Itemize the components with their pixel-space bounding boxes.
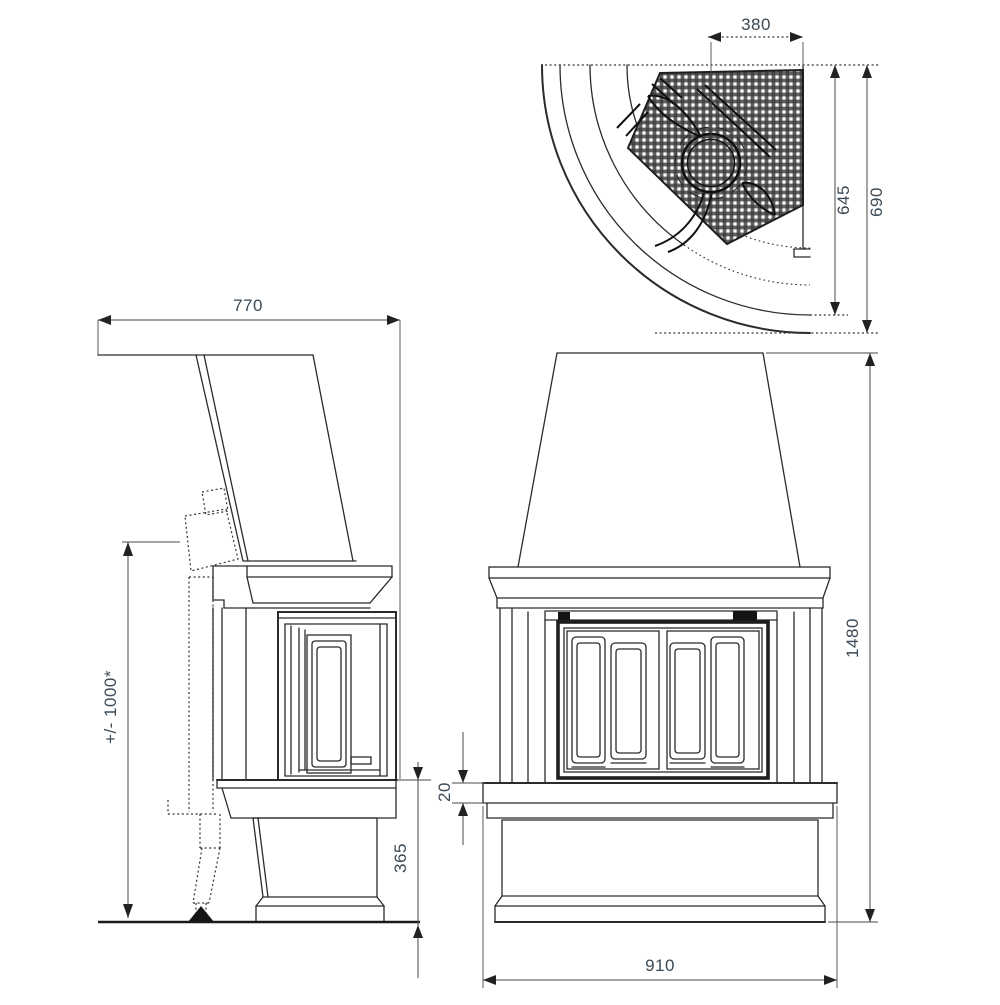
drawing-svg: 380 645 690 770	[0, 0, 1000, 1000]
top-view	[542, 65, 879, 333]
dim-645: 645	[830, 65, 853, 315]
side-view	[98, 355, 420, 922]
dim-label-690: 690	[867, 187, 886, 217]
latch-mark-right	[733, 611, 757, 621]
dim-1000: +/- 1000*	[101, 542, 180, 918]
dim-label-20: 20	[435, 782, 454, 802]
dim-20: 20	[435, 732, 486, 845]
dim-690: 690	[862, 65, 886, 333]
side-mantel-shelf	[213, 566, 392, 608]
door-handle	[351, 757, 371, 764]
side-back-panel	[213, 608, 246, 780]
front-mantel-shelf	[489, 567, 830, 608]
dim-770: 770	[98, 296, 400, 779]
dim-365: 365	[391, 762, 431, 978]
dim-label-380: 380	[741, 15, 771, 34]
front-firebox	[558, 622, 768, 778]
dim-label-645: 645	[834, 185, 853, 215]
hood-front-slant	[313, 355, 353, 561]
left-door	[567, 631, 659, 769]
dim-910: 910	[483, 806, 837, 988]
right-door	[667, 631, 759, 769]
front-pilasters	[500, 608, 822, 783]
dim-label-910: 910	[645, 956, 675, 975]
dim-label-770: 770	[233, 296, 263, 315]
technical-drawing-page: 380 645 690 770	[0, 0, 1000, 1000]
hinge-mark-left	[558, 612, 570, 620]
dim-label-1480: 1480	[843, 618, 862, 658]
front-hearth-base	[483, 783, 837, 922]
hood-edge-band-inner	[204, 355, 248, 561]
side-door-frame	[307, 635, 351, 773]
flue-pipe-dotted	[168, 488, 238, 922]
dim-label-1000: +/- 1000*	[101, 670, 120, 744]
dim-label-365: 365	[391, 843, 410, 873]
front-hood	[518, 353, 800, 567]
front-view	[483, 353, 837, 922]
inner-arc-1-hidden	[684, 245, 810, 285]
side-firebox	[278, 612, 396, 780]
side-hearth-base	[217, 780, 397, 922]
hood-edge-band-outer	[196, 355, 243, 561]
